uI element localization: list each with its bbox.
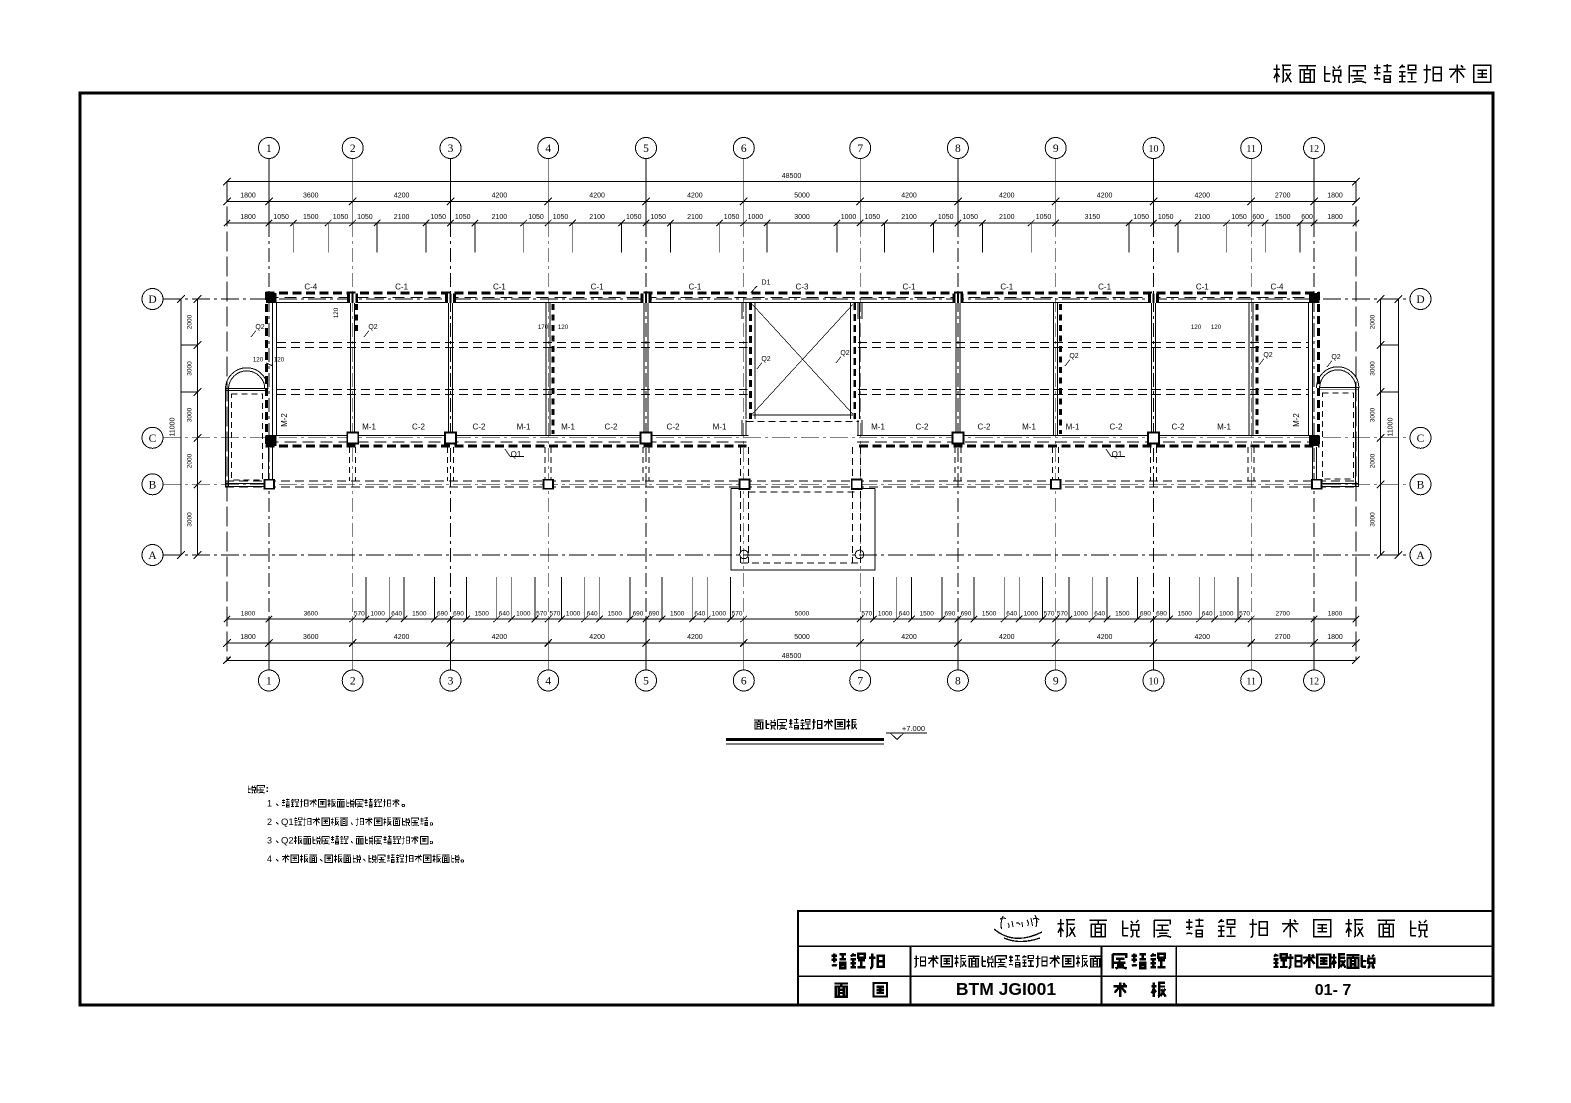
svg-text:4200: 4200 (394, 192, 410, 199)
svg-text:1000: 1000 (516, 611, 531, 618)
svg-text:4200: 4200 (589, 634, 605, 641)
svg-text:1050: 1050 (553, 214, 569, 221)
svg-text:2000: 2000 (1370, 453, 1377, 468)
svg-text:M-1: M-1 (871, 423, 885, 432)
svg-text:C-1: C-1 (591, 283, 604, 292)
svg-text:2000: 2000 (187, 314, 194, 329)
svg-text:120: 120 (274, 357, 285, 364)
svg-text:1: 1 (266, 143, 272, 155)
svg-text:2000: 2000 (187, 453, 194, 468)
svg-text:12: 12 (1309, 677, 1319, 688)
svg-text:1000: 1000 (878, 611, 893, 618)
svg-text:4: 4 (545, 143, 551, 155)
svg-text:3600: 3600 (304, 611, 319, 618)
svg-text:640: 640 (391, 611, 402, 618)
svg-text:5000: 5000 (794, 192, 810, 199)
svg-text:570: 570 (861, 611, 872, 618)
svg-text:4200: 4200 (492, 634, 508, 641)
svg-text:C-2: C-2 (1110, 423, 1123, 432)
svg-text:4200: 4200 (492, 192, 508, 199)
svg-text:2700: 2700 (1275, 192, 1291, 199)
svg-text:1800: 1800 (240, 214, 256, 221)
svg-text:1: 1 (267, 799, 272, 809)
svg-text:M-2: M-2 (280, 413, 289, 427)
svg-text:4200: 4200 (687, 634, 703, 641)
svg-text:1050: 1050 (650, 214, 666, 221)
svg-text:640: 640 (694, 611, 705, 618)
svg-text:4200: 4200 (901, 192, 917, 199)
svg-text:Q2: Q2 (1069, 353, 1078, 360)
svg-text:11: 11 (1246, 677, 1256, 688)
svg-text:1000: 1000 (1219, 611, 1234, 618)
svg-text:1800: 1800 (1327, 192, 1343, 199)
svg-text:640: 640 (587, 611, 598, 618)
svg-text:2100: 2100 (687, 214, 703, 221)
svg-text:1000: 1000 (1073, 611, 1088, 618)
svg-text:1050: 1050 (1231, 214, 1247, 221)
svg-text:1050: 1050 (626, 214, 642, 221)
svg-text:2100: 2100 (1195, 214, 1211, 221)
svg-text:3000: 3000 (1370, 361, 1377, 376)
svg-text:1050: 1050 (938, 214, 954, 221)
svg-text:570: 570 (1044, 611, 1055, 618)
svg-text:570: 570 (536, 611, 547, 618)
svg-text:1050: 1050 (1036, 214, 1052, 221)
svg-text:D: D (1416, 294, 1424, 306)
svg-text:1800: 1800 (1328, 611, 1343, 618)
svg-text:C-1: C-1 (493, 283, 506, 292)
svg-text:C-1: C-1 (1098, 283, 1111, 292)
svg-text:690: 690 (944, 611, 955, 618)
svg-text:4200: 4200 (1097, 634, 1113, 641)
svg-text:570: 570 (732, 611, 743, 618)
svg-text:48500: 48500 (782, 653, 802, 660)
svg-text:11000: 11000 (170, 417, 177, 436)
svg-text:8: 8 (955, 676, 961, 688)
svg-text:01- 7: 01- 7 (1315, 982, 1352, 999)
svg-text:C-2: C-2 (605, 423, 618, 432)
svg-text:4200: 4200 (901, 634, 917, 641)
svg-text:48500: 48500 (782, 173, 802, 180)
svg-text:1800: 1800 (240, 192, 256, 199)
svg-text:BTM JGI001: BTM JGI001 (956, 979, 1056, 999)
svg-text:1000: 1000 (1024, 611, 1039, 618)
svg-text:170: 170 (538, 324, 549, 331)
svg-text:7: 7 (857, 143, 863, 155)
svg-text:2: 2 (267, 817, 272, 827)
svg-text:1050: 1050 (528, 214, 544, 221)
svg-text:9: 9 (1053, 143, 1059, 155)
svg-text:3000: 3000 (187, 361, 194, 376)
svg-text:B: B (149, 479, 157, 491)
svg-text:1500: 1500 (474, 611, 489, 618)
svg-text:Q2: Q2 (368, 324, 377, 331)
svg-text:12: 12 (1309, 144, 1319, 155)
svg-text:640: 640 (1006, 611, 1017, 618)
svg-text:690: 690 (1156, 611, 1167, 618)
svg-text:C-1: C-1 (903, 283, 916, 292)
svg-text:C-3: C-3 (796, 283, 809, 292)
svg-text:A: A (148, 550, 157, 562)
svg-text:2700: 2700 (1275, 611, 1290, 618)
svg-text:3600: 3600 (303, 192, 319, 199)
svg-text:C-2: C-2 (1172, 423, 1185, 432)
svg-text:Q1: Q1 (281, 817, 294, 828)
svg-text:1050: 1050 (724, 214, 740, 221)
svg-text:6: 6 (741, 143, 747, 155)
svg-text:3000: 3000 (794, 214, 810, 221)
svg-text:Q2: Q2 (255, 324, 264, 331)
svg-text:9: 9 (1053, 676, 1059, 688)
svg-text:600: 600 (1301, 214, 1313, 221)
svg-text:M-1: M-1 (713, 423, 727, 432)
svg-text:3000: 3000 (187, 407, 194, 422)
svg-text:2700: 2700 (1275, 634, 1291, 641)
svg-text:640: 640 (899, 611, 910, 618)
svg-text:4200: 4200 (1195, 192, 1211, 199)
svg-text:Q2: Q2 (840, 350, 849, 357)
svg-text:4200: 4200 (1097, 192, 1113, 199)
svg-text:3: 3 (448, 143, 454, 155)
svg-text:C-4: C-4 (304, 283, 317, 292)
svg-text:4: 4 (267, 854, 272, 864)
svg-text:3600: 3600 (303, 634, 319, 641)
svg-text:1500: 1500 (1177, 611, 1192, 618)
svg-text:2100: 2100 (999, 214, 1015, 221)
svg-text:4200: 4200 (589, 192, 605, 199)
svg-text:M-1: M-1 (517, 423, 531, 432)
svg-text:Q1: Q1 (1112, 450, 1123, 459)
svg-text:1050: 1050 (357, 214, 373, 221)
svg-text:4200: 4200 (999, 634, 1015, 641)
svg-text:120: 120 (333, 307, 340, 318)
svg-text:C-2: C-2 (667, 423, 680, 432)
svg-text:600: 600 (1252, 214, 1264, 221)
svg-text:570: 570 (1239, 611, 1250, 618)
svg-text:2100: 2100 (589, 214, 605, 221)
svg-text:5000: 5000 (795, 611, 810, 618)
svg-text:2100: 2100 (492, 214, 508, 221)
svg-text:C-4: C-4 (1271, 283, 1284, 292)
svg-text:4200: 4200 (687, 192, 703, 199)
svg-text:M-1: M-1 (1066, 423, 1080, 432)
svg-text:5000: 5000 (794, 634, 810, 641)
svg-text:640: 640 (1094, 611, 1105, 618)
svg-text:8: 8 (955, 143, 961, 155)
svg-text:C-2: C-2 (412, 423, 425, 432)
svg-text:3: 3 (267, 836, 272, 846)
svg-text:Q2: Q2 (1263, 352, 1272, 359)
svg-text:120: 120 (253, 357, 264, 364)
svg-text:570: 570 (1057, 611, 1068, 618)
svg-text:C: C (1417, 433, 1425, 445)
svg-text:3150: 3150 (1085, 214, 1101, 221)
svg-text:1050: 1050 (1158, 214, 1174, 221)
svg-text:Q2: Q2 (281, 836, 294, 847)
svg-text:1000: 1000 (566, 611, 581, 618)
svg-text:M-1: M-1 (561, 423, 575, 432)
svg-text:+7.000: +7.000 (902, 724, 925, 733)
svg-text:1500: 1500 (670, 611, 685, 618)
svg-text:1000: 1000 (370, 611, 385, 618)
svg-text:1800: 1800 (240, 634, 256, 641)
svg-text:1050: 1050 (333, 214, 349, 221)
svg-text:2100: 2100 (901, 214, 917, 221)
svg-text:D: D (148, 294, 156, 306)
svg-text:1050: 1050 (962, 214, 978, 221)
svg-text:5: 5 (643, 676, 649, 688)
svg-text:1: 1 (266, 676, 272, 688)
svg-text:7: 7 (857, 676, 863, 688)
svg-text:1050: 1050 (865, 214, 881, 221)
svg-text:Q1: Q1 (511, 450, 522, 459)
svg-text:1050: 1050 (1133, 214, 1149, 221)
svg-text:120: 120 (1191, 324, 1202, 331)
svg-text:11: 11 (1246, 144, 1256, 155)
svg-text:1500: 1500 (412, 611, 427, 618)
svg-text:690: 690 (633, 611, 644, 618)
svg-text:3000: 3000 (1370, 407, 1377, 422)
svg-text:C-1: C-1 (688, 283, 701, 292)
svg-text:1500: 1500 (1275, 214, 1291, 221)
svg-text:1000: 1000 (841, 214, 857, 221)
svg-text:3000: 3000 (187, 512, 194, 527)
svg-text:1000: 1000 (712, 611, 727, 618)
svg-text:2: 2 (350, 143, 356, 155)
svg-text:4200: 4200 (394, 634, 410, 641)
svg-text:1050: 1050 (430, 214, 446, 221)
svg-text:1050: 1050 (273, 214, 289, 221)
svg-text:10: 10 (1149, 677, 1159, 688)
svg-text:690: 690 (437, 611, 448, 618)
svg-text:1800: 1800 (1327, 214, 1343, 221)
svg-text:6: 6 (741, 676, 747, 688)
svg-text:4200: 4200 (1195, 634, 1211, 641)
svg-text:2: 2 (350, 676, 356, 688)
svg-text:640: 640 (1202, 611, 1213, 618)
svg-text:C: C (149, 433, 157, 445)
svg-text:3: 3 (448, 676, 454, 688)
svg-text:1500: 1500 (1115, 611, 1130, 618)
svg-text:2100: 2100 (394, 214, 410, 221)
svg-text:4200: 4200 (999, 192, 1015, 199)
svg-text:A: A (1416, 550, 1425, 562)
svg-text:1500: 1500 (303, 214, 319, 221)
svg-text:120: 120 (558, 324, 569, 331)
svg-text:1000: 1000 (748, 214, 764, 221)
svg-text:2000: 2000 (1370, 314, 1377, 329)
svg-text:M-1: M-1 (1022, 423, 1036, 432)
svg-text:Q2: Q2 (1331, 354, 1340, 361)
svg-text:1500: 1500 (982, 611, 997, 618)
svg-text:570: 570 (354, 611, 365, 618)
svg-text:M-1: M-1 (1217, 423, 1231, 432)
svg-text:D1: D1 (762, 280, 771, 287)
svg-text:11000: 11000 (1388, 417, 1395, 436)
svg-text:1800: 1800 (1327, 634, 1343, 641)
svg-text:M-2: M-2 (1292, 413, 1301, 427)
svg-text:690: 690 (453, 611, 464, 618)
svg-text:C-2: C-2 (916, 423, 929, 432)
svg-text:4: 4 (545, 676, 551, 688)
svg-text:M-1: M-1 (362, 423, 376, 432)
svg-text:1500: 1500 (608, 611, 623, 618)
svg-text:C-1: C-1 (395, 283, 408, 292)
svg-text:3000: 3000 (1370, 512, 1377, 527)
svg-text:120: 120 (1211, 324, 1222, 331)
svg-text:690: 690 (649, 611, 660, 618)
svg-text:5: 5 (643, 143, 649, 155)
svg-text:1050: 1050 (455, 214, 471, 221)
svg-text:B: B (1417, 479, 1425, 491)
svg-text:C-2: C-2 (473, 423, 486, 432)
svg-text:640: 640 (499, 611, 510, 618)
svg-text:690: 690 (961, 611, 972, 618)
svg-text:690: 690 (1140, 611, 1151, 618)
svg-text:1800: 1800 (241, 611, 256, 618)
svg-text:570: 570 (549, 611, 560, 618)
svg-text:10: 10 (1149, 144, 1159, 155)
svg-text:C-1: C-1 (1196, 283, 1209, 292)
svg-text:Q2: Q2 (761, 356, 770, 363)
svg-text:1500: 1500 (919, 611, 934, 618)
svg-text:C-2: C-2 (978, 423, 991, 432)
svg-text:C-1: C-1 (1000, 283, 1013, 292)
